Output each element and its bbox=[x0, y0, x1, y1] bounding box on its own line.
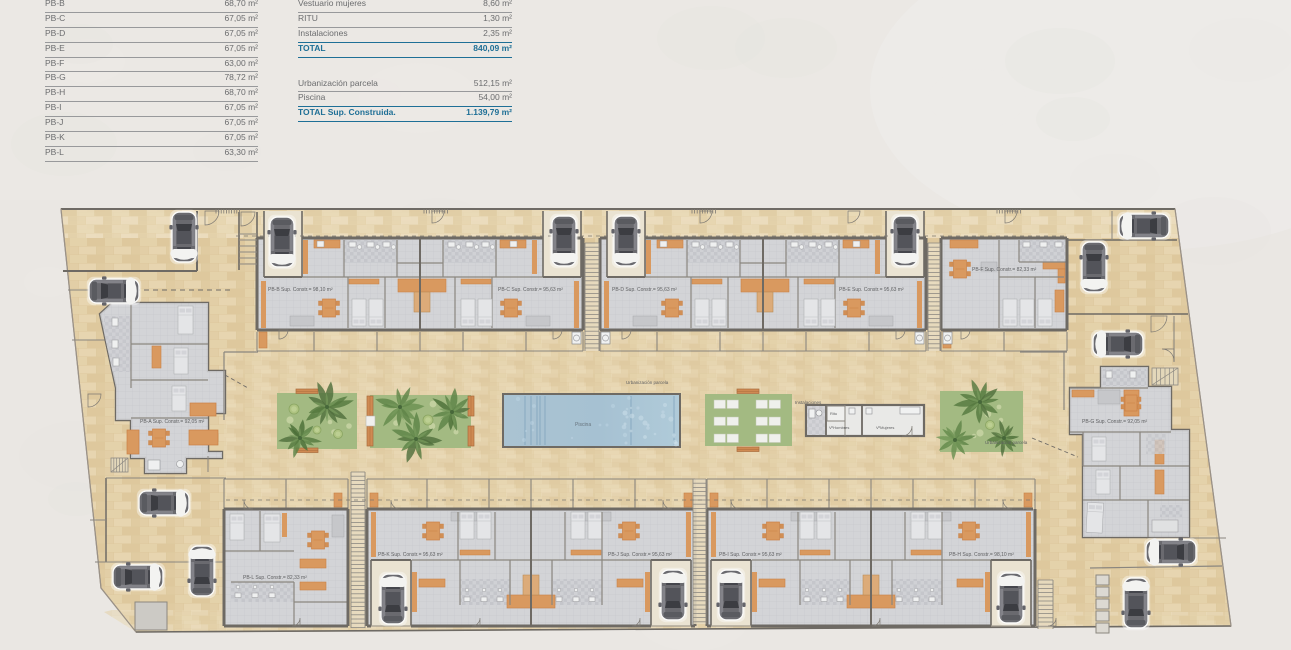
svg-text:Urbanización parcela: Urbanización parcela bbox=[985, 440, 1028, 445]
svg-text:Piscina: Piscina bbox=[575, 422, 591, 428]
svg-text:PB-K Sup. Constr.= 95,63 m²: PB-K Sup. Constr.= 95,63 m² bbox=[378, 552, 443, 558]
svg-text:Instalaciones: Instalaciones bbox=[795, 400, 822, 405]
svg-text:PB-G Sup. Constr.= 92,05 m²: PB-G Sup. Constr.= 92,05 m² bbox=[1082, 419, 1148, 425]
svg-text:VºMujeres: VºMujeres bbox=[876, 425, 894, 430]
svg-text:PB-I Sup. Constr.= 95,63 m²: PB-I Sup. Constr.= 95,63 m² bbox=[719, 552, 782, 558]
svg-text:PB-H Sup. Constr.= 98,10 m²: PB-H Sup. Constr.= 98,10 m² bbox=[949, 552, 1014, 558]
svg-text:PB-F Sup. Constr.= 82,33 m²: PB-F Sup. Constr.= 82,33 m² bbox=[972, 267, 1037, 273]
svg-text:PB-C Sup. Constr.= 95,63 m²: PB-C Sup. Constr.= 95,63 m² bbox=[498, 287, 563, 293]
svg-text:PB-D Sup. Constr.= 95,63 m²: PB-D Sup. Constr.= 95,63 m² bbox=[612, 287, 677, 293]
svg-text:Urbanización parcela: Urbanización parcela bbox=[626, 380, 669, 385]
svg-text:PB-E Sup. Constr.= 95,63 m²: PB-E Sup. Constr.= 95,63 m² bbox=[839, 287, 904, 293]
svg-text:PB-A Sup. Constr.= 92,05 m²: PB-A Sup. Constr.= 92,05 m² bbox=[140, 419, 205, 425]
svg-text:PB-B Sup. Constr.= 98,10 m²: PB-B Sup. Constr.= 98,10 m² bbox=[268, 287, 333, 293]
svg-text:VºHombres: VºHombres bbox=[829, 425, 849, 430]
svg-text:PB-J Sup. Constr.= 95,63 m²: PB-J Sup. Constr.= 95,63 m² bbox=[608, 552, 672, 558]
svg-text:PB-L Sup. Constr.= 82,33 m²: PB-L Sup. Constr.= 82,33 m² bbox=[243, 575, 307, 581]
svg-text:Ritu: Ritu bbox=[830, 411, 837, 416]
